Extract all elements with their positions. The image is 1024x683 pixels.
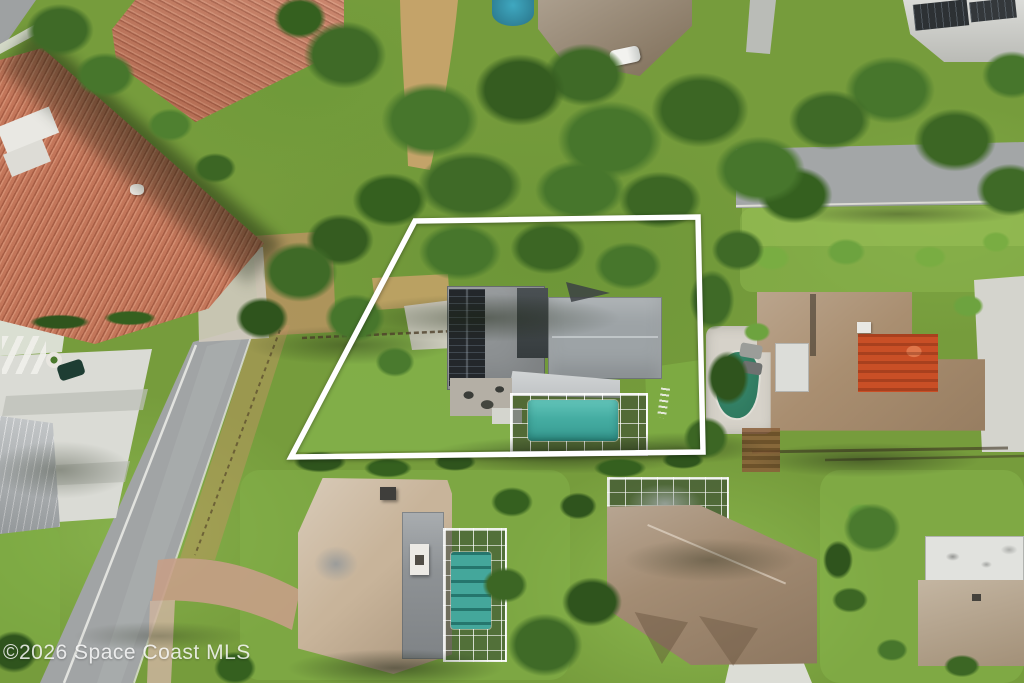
property-boundary-outline bbox=[291, 217, 703, 457]
watermark-text: ©2026 Space Coast MLS bbox=[3, 641, 251, 665]
aerial-photo: ©2026 Space Coast MLS bbox=[0, 0, 1024, 683]
property-boundary-overlay bbox=[0, 0, 1024, 683]
